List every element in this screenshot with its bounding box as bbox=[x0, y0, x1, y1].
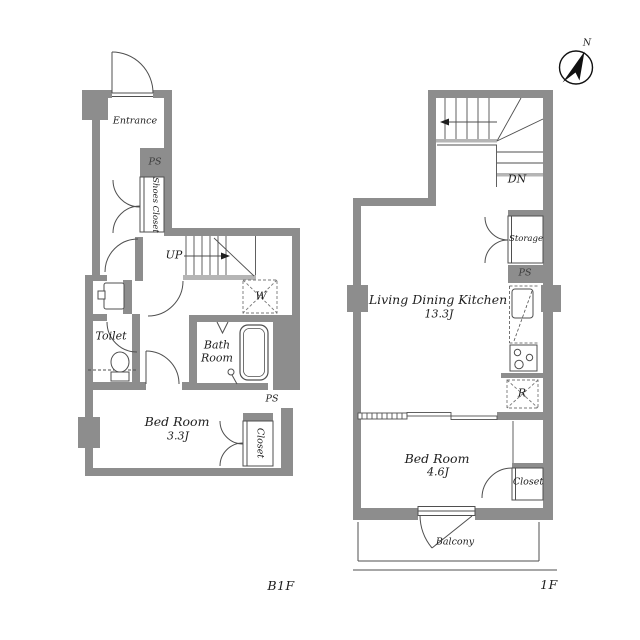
b1f-bedroom-door bbox=[146, 351, 179, 384]
f1-plan bbox=[347, 90, 561, 570]
b1f-bathroom-label: Bath Room bbox=[194, 339, 240, 364]
f1-balcony-label: Balcony bbox=[436, 538, 474, 549]
f1-bedroom-size-label: 4.6J bbox=[427, 467, 449, 480]
f1-pillar-right bbox=[541, 285, 561, 312]
shower-icon bbox=[228, 369, 234, 375]
f1-ldk-label: Living Dining Kitchen bbox=[369, 293, 507, 307]
b1f-hall-door bbox=[105, 239, 138, 272]
f1-pillar-left bbox=[347, 285, 368, 312]
b1f-pillar-left bbox=[78, 417, 100, 448]
floor-plan-drawing bbox=[0, 0, 640, 640]
b1f-up-arrow bbox=[221, 253, 230, 260]
b1f-stairs bbox=[183, 236, 256, 280]
compass-north-label: N bbox=[583, 39, 591, 50]
b1f-toilet-label: Toilet bbox=[95, 331, 126, 344]
bath-door-mark bbox=[217, 322, 228, 333]
b1f-entrance-door bbox=[112, 52, 153, 97]
b1f-shoes-closet-label: Shoes Closet bbox=[149, 177, 159, 233]
b1f-floor-label: B1F bbox=[267, 579, 294, 593]
b1f-inner-door bbox=[148, 281, 183, 316]
b1f-vanity bbox=[98, 283, 124, 309]
f1-fridge-label: R bbox=[518, 388, 526, 401]
b1f-ps-lower-label: PS bbox=[266, 395, 279, 406]
f1-dn-label: DN bbox=[508, 174, 526, 187]
sliding-door-panel bbox=[407, 413, 451, 417]
b1f-up-label: UP bbox=[166, 250, 183, 263]
f1-bedroom-label: Bed Room bbox=[405, 452, 470, 466]
kitchen-sink bbox=[512, 289, 533, 318]
f1-ldk-size-label: 13.3J bbox=[425, 309, 454, 322]
b1f-ps-upper-label: PS bbox=[149, 158, 162, 169]
b1f-entrance-label: Entrance bbox=[113, 117, 157, 128]
kitchen-counter bbox=[510, 286, 539, 371]
compass-icon bbox=[560, 51, 593, 84]
b1f-washer-label: W bbox=[255, 291, 266, 304]
f1-dn-arrow bbox=[440, 119, 449, 126]
f1-ps-label: PS bbox=[519, 269, 532, 280]
f1-storage-label: Storage bbox=[509, 235, 543, 245]
sliding-door-panel bbox=[451, 416, 497, 420]
b1f-closet-label: Closet bbox=[254, 428, 265, 458]
b1f-bedroom-label: Bed Room bbox=[145, 415, 210, 429]
f1-floor-label: 1F bbox=[540, 578, 558, 592]
floor-plan-canvas: Entrance PS Shoes Closet UP W Toilet Bat… bbox=[0, 0, 640, 640]
b1f-plan bbox=[78, 52, 300, 476]
compass-needle bbox=[563, 52, 585, 83]
b1f-bedroom-size-label: 3.3J bbox=[167, 431, 189, 444]
stove-icon bbox=[510, 345, 537, 371]
f1-closet-label: Closet bbox=[513, 478, 543, 489]
f1-stairs bbox=[436, 98, 543, 187]
